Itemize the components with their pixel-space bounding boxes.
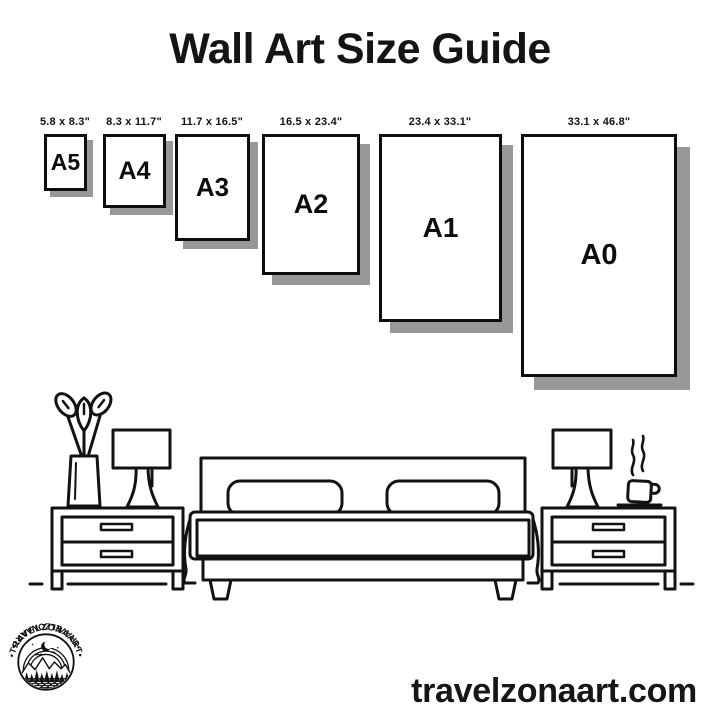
size-label-a0: 33.1 x 46.8" [568,116,631,128]
frame-a5-letter: A5 [51,149,80,176]
frame-a4-letter: A4 [119,157,151,186]
bed-base [203,559,523,580]
nightstand-leg [173,571,183,589]
frame-a4: A4 [103,134,166,208]
steam [642,436,644,471]
nightstand-leg [665,571,675,589]
pillow-right [387,481,499,515]
bed [184,458,539,599]
cup-body [627,480,651,502]
website-url: travelzonaart.com [411,672,697,711]
size-label-a1: 23.4 x 33.1" [409,116,472,128]
frame-a1-letter: A1 [423,212,459,244]
size-label-a5: 5.8 x 8.3" [40,116,90,128]
drawer-handle [593,551,624,557]
drawer-handle [101,551,132,557]
lamp-shade [113,430,170,468]
nightstand-right [542,508,675,589]
frame-a2: A2 [262,134,360,275]
lamp-left [113,430,170,507]
frame-a0: A0 [521,134,677,377]
nightstand-left [52,508,183,589]
lamp-shade [553,430,611,468]
frame-a5: A5 [44,134,87,191]
pillow-left [228,481,342,515]
brand-logo: •TRAVELZONAART• •TRAVELZONAART• [4,620,88,704]
steam [632,440,634,475]
size-label-a2: 16.5 x 23.4" [280,116,343,128]
frame-a1: A1 [379,134,502,322]
drawer-handle [101,524,132,530]
mattress [197,520,529,556]
coffee-cup-icon [618,436,661,505]
nightstand-leg [542,571,552,589]
bed-leg-left [210,580,231,599]
frame-a3-letter: A3 [196,172,229,203]
size-label-a3: 11.7 x 16.5" [181,116,243,128]
vase [68,456,100,506]
bed-leg-right [495,580,516,599]
vase-with-flowers [52,389,115,506]
frame-a0-letter: A0 [580,239,617,272]
drawer-handle [593,524,624,530]
frame-a3: A3 [175,134,250,241]
lamp-right [553,430,611,507]
size-label-a4: 8.3 x 11.7" [106,116,162,128]
nightstand-leg [52,571,62,589]
frame-a2-letter: A2 [294,189,329,220]
